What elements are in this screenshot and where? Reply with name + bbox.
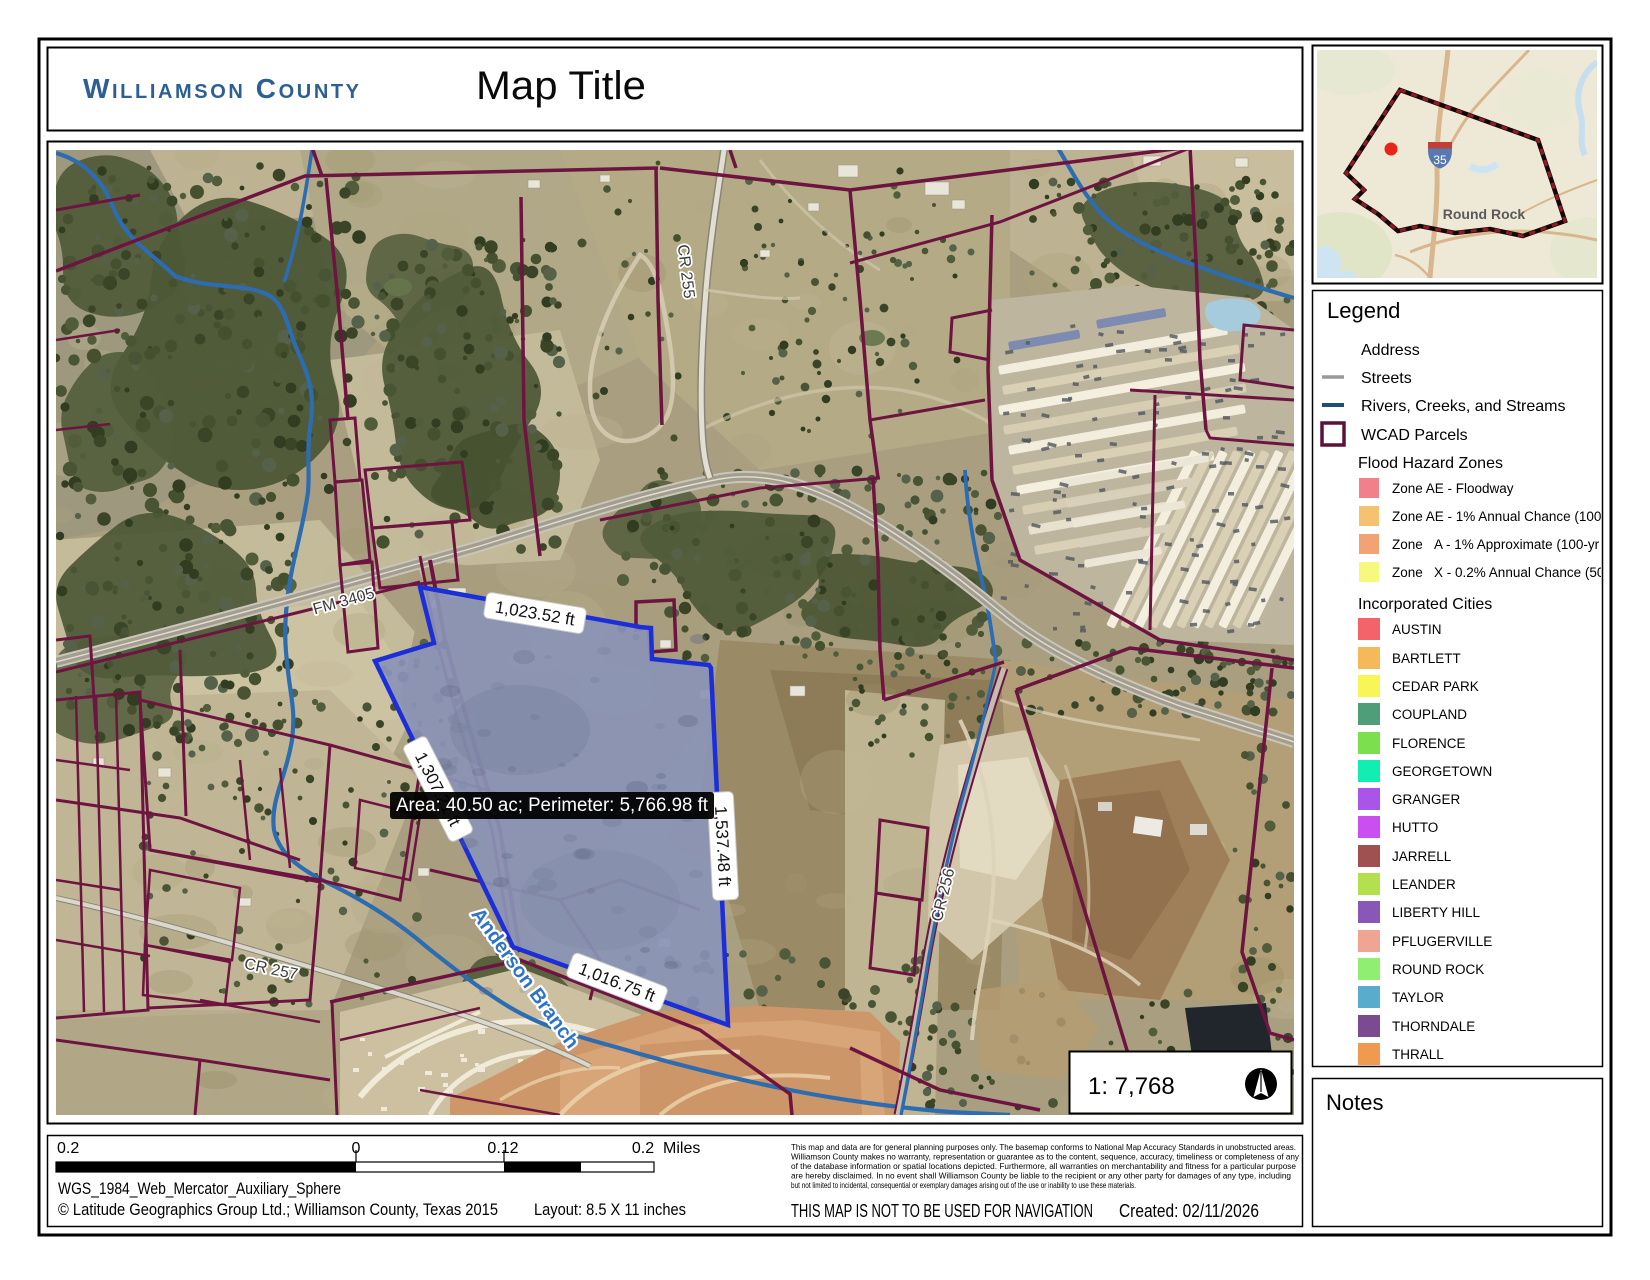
svg-text:0.2: 0.2 (632, 1140, 654, 1157)
svg-text:Williamson County: Williamson County (83, 73, 362, 104)
svg-text:CEDAR PARK: CEDAR PARK (1392, 679, 1479, 694)
svg-text:Legend: Legend (1327, 298, 1400, 323)
svg-text:This map and data are for gene: This map and data are for general planni… (791, 1142, 1296, 1152)
svg-text:Zone A - 1% Approximate (100: Zone A - 1% Approximate (100-yr (1392, 537, 1600, 552)
svg-text:0.12: 0.12 (487, 1140, 518, 1157)
svg-text:Streets: Streets (1361, 370, 1412, 387)
svg-text:Flood Hazard Zones: Flood Hazard Zones (1358, 455, 1503, 472)
svg-text:THRALL: THRALL (1392, 1047, 1444, 1062)
svg-text:Zone AE - Floodway: Zone AE - Floodway (1392, 481, 1514, 496)
svg-text:of the database information or: of the database information or spatial l… (791, 1161, 1296, 1171)
svg-text:35: 35 (1433, 153, 1447, 167)
svg-text:HUTTO: HUTTO (1392, 820, 1438, 835)
svg-text:AUSTIN: AUSTIN (1392, 622, 1442, 637)
svg-text:Round Rock: Round Rock (1443, 206, 1526, 222)
svg-text:but not limited to incidental,: but not limited to incidental, consequen… (791, 1180, 1136, 1190)
svg-text:JARRELL: JARRELL (1392, 849, 1452, 864)
svg-text:Rivers, Creeks, and Streams: Rivers, Creeks, and Streams (1361, 398, 1566, 415)
svg-text:FLORENCE: FLORENCE (1392, 736, 1466, 751)
svg-text:Notes: Notes (1326, 1090, 1383, 1115)
svg-text:0: 0 (352, 1140, 361, 1157)
svg-text:Layout: 8.5 X 11 inches: Layout: 8.5 X 11 inches (534, 1200, 686, 1219)
svg-text:Williamson County makes no war: Williamson County makes no warranty, rep… (791, 1152, 1300, 1162)
svg-text:0.2: 0.2 (57, 1140, 79, 1157)
svg-text:THORNDALE: THORNDALE (1392, 1019, 1475, 1034)
svg-text:Area: 40.50 ac; Perimeter: 5,7: Area: 40.50 ac; Perimeter: 5,766.98 ft (396, 795, 709, 816)
svg-text:LIBERTY HILL: LIBERTY HILL (1392, 905, 1481, 920)
svg-text:ROUND ROCK: ROUND ROCK (1392, 962, 1484, 977)
svg-text:Created: 02/11/2026: Created: 02/11/2026 (1119, 1201, 1259, 1221)
svg-text:© Latitude Geographics Group L: © Latitude Geographics Group Ltd.; Willi… (58, 1200, 498, 1219)
svg-text:GEORGETOWN: GEORGETOWN (1392, 764, 1492, 779)
svg-text:COUPLAND: COUPLAND (1392, 707, 1467, 722)
svg-text:TAYLOR: TAYLOR (1392, 990, 1444, 1005)
svg-text:BARTLETT: BARTLETT (1392, 651, 1461, 666)
svg-text:Map Title: Map Title (476, 64, 646, 108)
svg-text:PFLUGERVILLE: PFLUGERVILLE (1392, 934, 1492, 949)
svg-text:WGS_1984_Web_Mercator_Auxiliar: WGS_1984_Web_Mercator_Auxiliary_Sphere (58, 1179, 341, 1198)
svg-text:THIS MAP IS NOT TO BE USED FOR: THIS MAP IS NOT TO BE USED FOR NAVIGATIO… (791, 1201, 1093, 1221)
svg-text:Zone AE - 1% Annual Chance (10: Zone AE - 1% Annual Chance (100 (1392, 509, 1601, 524)
svg-text:WCAD Parcels: WCAD Parcels (1361, 427, 1468, 444)
svg-text:Miles: Miles (663, 1140, 700, 1157)
svg-text:LEANDER: LEANDER (1392, 877, 1456, 892)
svg-text:Address: Address (1361, 342, 1420, 359)
svg-text:are hereby disclaimed. In no e: are hereby disclaimed. In no event shall… (791, 1171, 1291, 1181)
svg-text:GRANGER: GRANGER (1392, 792, 1461, 807)
svg-text:Zone X - 0.2% Annual Chance: Zone X - 0.2% Annual Chance (50 (1392, 565, 1604, 580)
svg-text:1: 7,768: 1: 7,768 (1088, 1073, 1175, 1100)
svg-text:Incorporated Cities: Incorporated Cities (1358, 596, 1492, 613)
